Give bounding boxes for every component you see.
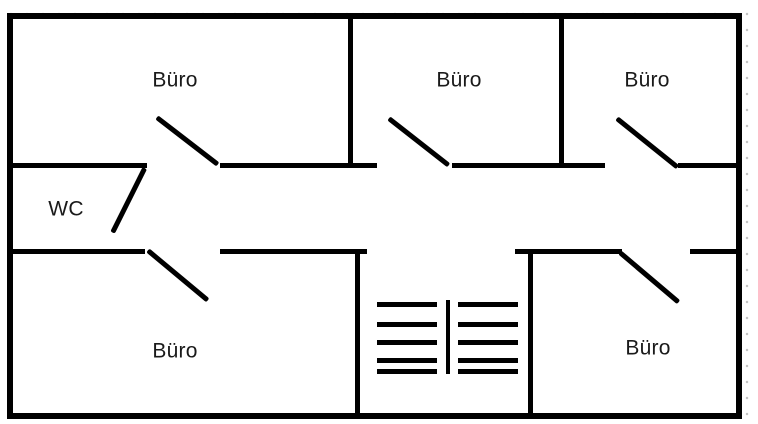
stair-step-left xyxy=(377,302,437,307)
stair-step-left xyxy=(377,340,437,345)
room-label-buero-bottom-left: Büro xyxy=(152,341,197,362)
stair-step-right xyxy=(458,369,518,374)
stair-step-left xyxy=(377,358,437,363)
wall-segment xyxy=(559,19,564,168)
stair-step-right xyxy=(458,322,518,327)
stair-step-right xyxy=(458,340,518,345)
room-label-buero-top-middle: Büro xyxy=(436,70,481,91)
room-label-buero-top-right: Büro xyxy=(624,70,669,91)
wall-segment xyxy=(355,249,360,413)
wall-segment xyxy=(13,163,147,168)
stair-step-right xyxy=(458,302,518,307)
stair-step-left xyxy=(377,322,437,327)
wall-segment xyxy=(220,249,367,254)
wall-segment xyxy=(13,249,145,254)
stair-center-rail xyxy=(446,300,450,374)
room-label-wc: WC xyxy=(48,199,83,220)
wall-segment xyxy=(528,249,533,413)
wall-segment xyxy=(690,249,736,254)
room-label-buero-top-left: Büro xyxy=(152,70,197,91)
wall-segment xyxy=(678,163,736,168)
wall-segment xyxy=(220,163,377,168)
stair-step-left xyxy=(377,369,437,374)
wall-segment xyxy=(348,19,353,168)
floor-plan-canvas: Büro Büro Büro WC Büro Büro xyxy=(0,0,758,424)
stair-step-right xyxy=(458,358,518,363)
room-label-buero-bottom-right: Büro xyxy=(625,338,670,359)
wall-segment xyxy=(452,163,605,168)
